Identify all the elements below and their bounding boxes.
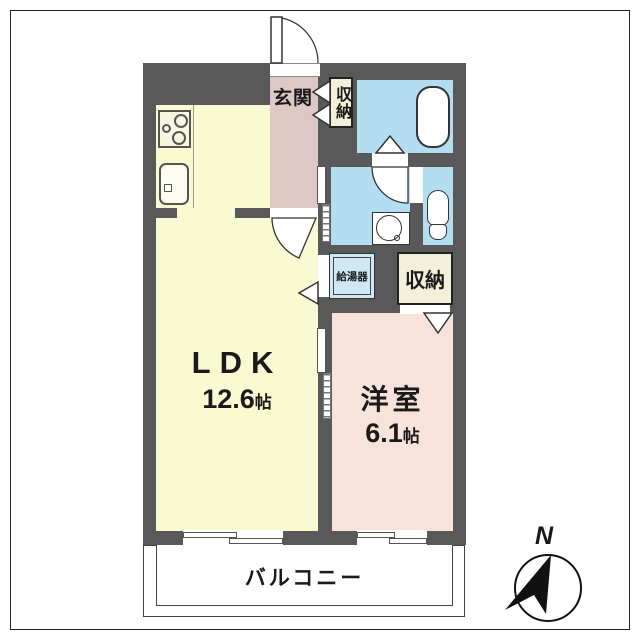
water-heater-box: 給湯器 [329,253,375,299]
sink-drain-icon [164,184,172,192]
ldk-western-sliding-door-rail [323,373,331,419]
entrance-storage-label: 収納 [329,86,353,120]
ldk-window-icon [183,530,283,545]
window-pane [389,538,427,544]
hallway-door-threshold [270,208,318,218]
ldk-size-label: 12.6帖 [156,384,318,415]
kitchen-counter-edge [193,105,194,208]
bathroom-door-threshold [372,153,408,167]
toilet-doorway [410,167,423,203]
ldk-room-label: LDK [156,345,318,381]
western-room-size-unit: 帖 [403,427,420,446]
kitchen-opening [177,208,235,218]
stove-burner-icon [174,114,188,128]
toilet-base-icon [429,224,447,240]
toilet-icon [427,190,449,226]
water-heater-opening [318,255,329,297]
bathtub-icon [416,86,450,148]
washroom-sliding-door-panel [317,166,326,204]
compass-north-label: N [524,522,564,551]
western-room-size-value: 6.1 [365,418,403,448]
ldk-size-unit: 帖 [255,393,272,412]
stove-burner-icon [172,131,186,145]
entrance-storage-box: 収納 [329,77,353,128]
floorplan-canvas: 収納 給湯器 収納 [0,0,640,640]
ldk-size-value: 12.6 [202,384,255,414]
western-room-size-label: 6.1帖 [332,418,453,449]
ldk-western-sliding-door-panel [317,328,326,373]
washroom-sliding-door-rail [322,204,330,242]
entrance-label: 玄関 [268,83,318,110]
western-room-window-icon [357,530,427,545]
western-room-label: 洋室 [332,378,453,418]
stove-burner-icon [162,124,171,133]
entrance-door-threshold [270,63,320,77]
washbasin-faucet-icon [394,235,400,241]
closet-threshold [400,305,450,314]
closet-box: 収納 [397,252,453,305]
closet-label: 収納 [405,264,445,293]
window-pane [229,538,283,544]
water-heater-label: 給湯器 [336,269,368,284]
balcony-label: バルコニー [156,562,453,592]
